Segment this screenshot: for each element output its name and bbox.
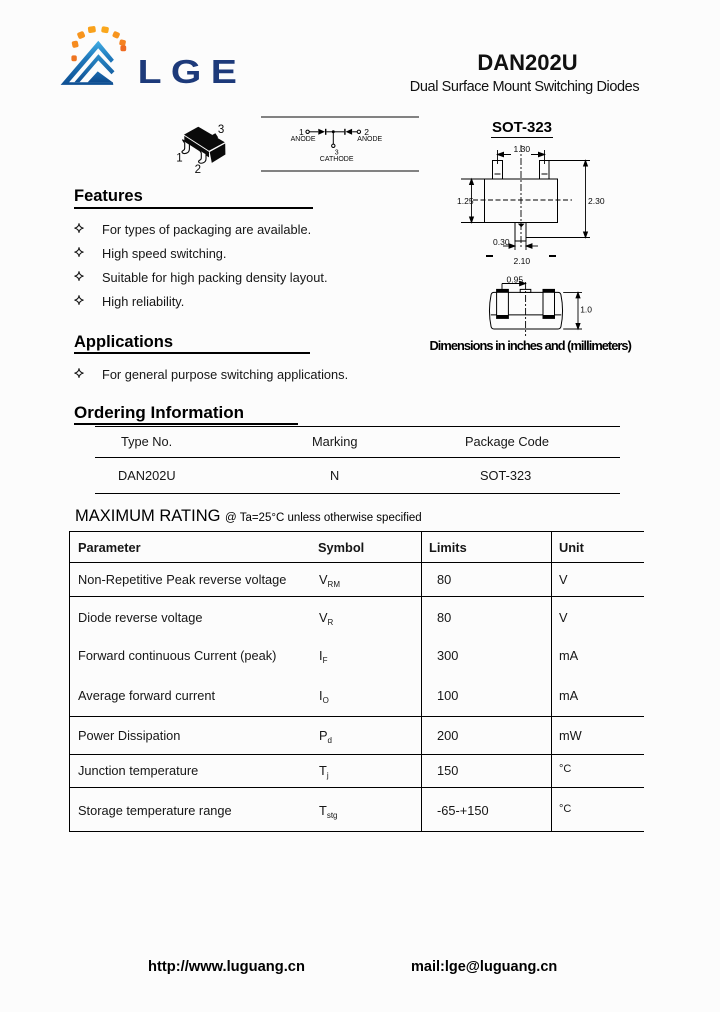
svg-text:ANODE: ANODE (357, 136, 382, 143)
svg-text:1: 1 (176, 152, 182, 164)
svg-text:2.30: 2.30 (588, 196, 605, 206)
svg-text:1.0: 1.0 (580, 305, 592, 315)
svg-text:3: 3 (218, 124, 224, 136)
svg-text:1.30: 1.30 (514, 144, 531, 154)
svg-text:LGE: LGE (138, 52, 247, 90)
svg-text:0.95: 0.95 (507, 275, 524, 285)
svg-text:ANODE: ANODE (291, 136, 316, 143)
svg-text:2.10: 2.10 (514, 256, 531, 266)
svg-text:1.25: 1.25 (457, 196, 474, 206)
svg-text:CATHODE: CATHODE (320, 156, 354, 163)
svg-text:2: 2 (195, 164, 201, 176)
svg-text:0.30: 0.30 (493, 237, 510, 247)
